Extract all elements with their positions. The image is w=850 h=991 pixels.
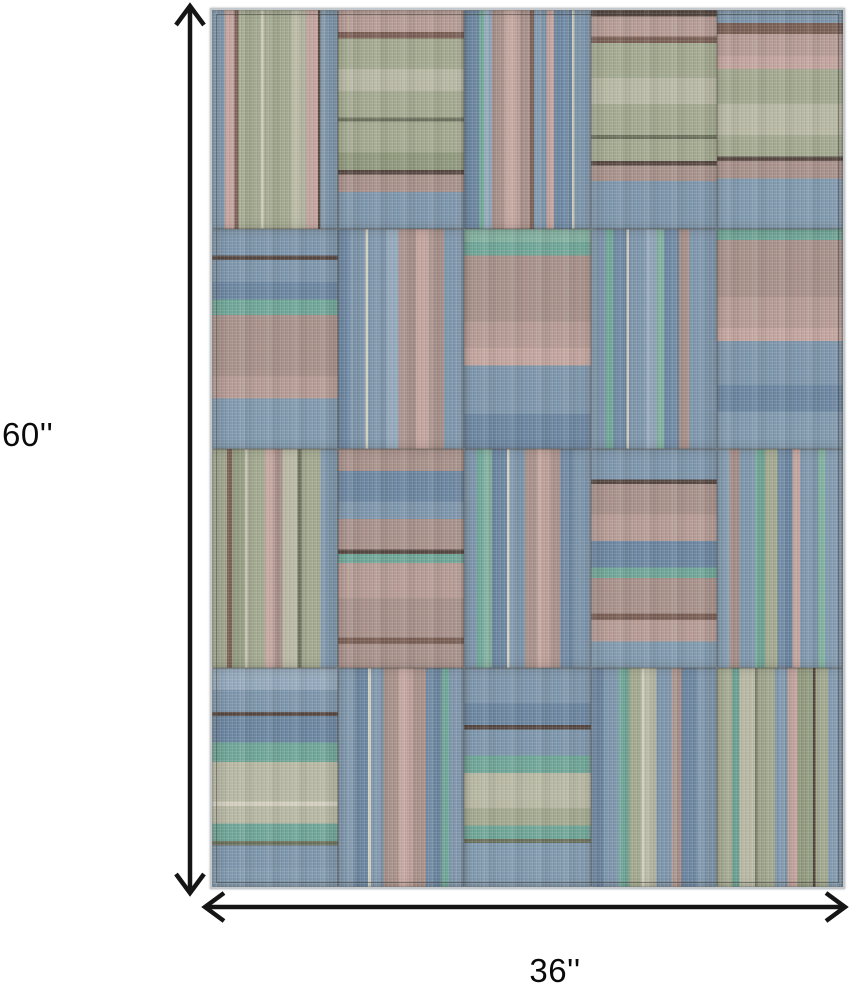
width-dimension-label: 36'' [500, 952, 610, 990]
rug-product-image [210, 8, 845, 889]
rug-patch [464, 449, 590, 668]
rug-patch [212, 229, 338, 448]
product-dimension-figure: 60'' 36'' [0, 0, 850, 991]
rug-patch [591, 449, 717, 668]
rug-patch-grid [212, 10, 843, 887]
rug-patch [338, 229, 464, 448]
rug-patch [338, 449, 464, 668]
rug-patch [591, 229, 717, 448]
rug-patch [212, 10, 338, 229]
rug-patch [717, 449, 843, 668]
rug-patch [591, 10, 717, 229]
rug-patch [717, 668, 843, 887]
width-dimension-arrow [198, 886, 850, 928]
rug-patch [717, 10, 843, 229]
height-dimension-label: 60'' [2, 416, 62, 454]
rug-patch [338, 10, 464, 229]
rug-patch [464, 668, 590, 887]
rug-patch [338, 668, 464, 887]
height-dimension-arrow [170, 0, 210, 902]
rug-patch [464, 229, 590, 448]
rug-patch [591, 668, 717, 887]
rug-patch [717, 229, 843, 448]
rug-patch [212, 668, 338, 887]
rug-patch [212, 449, 338, 668]
rug-patch [464, 10, 590, 229]
